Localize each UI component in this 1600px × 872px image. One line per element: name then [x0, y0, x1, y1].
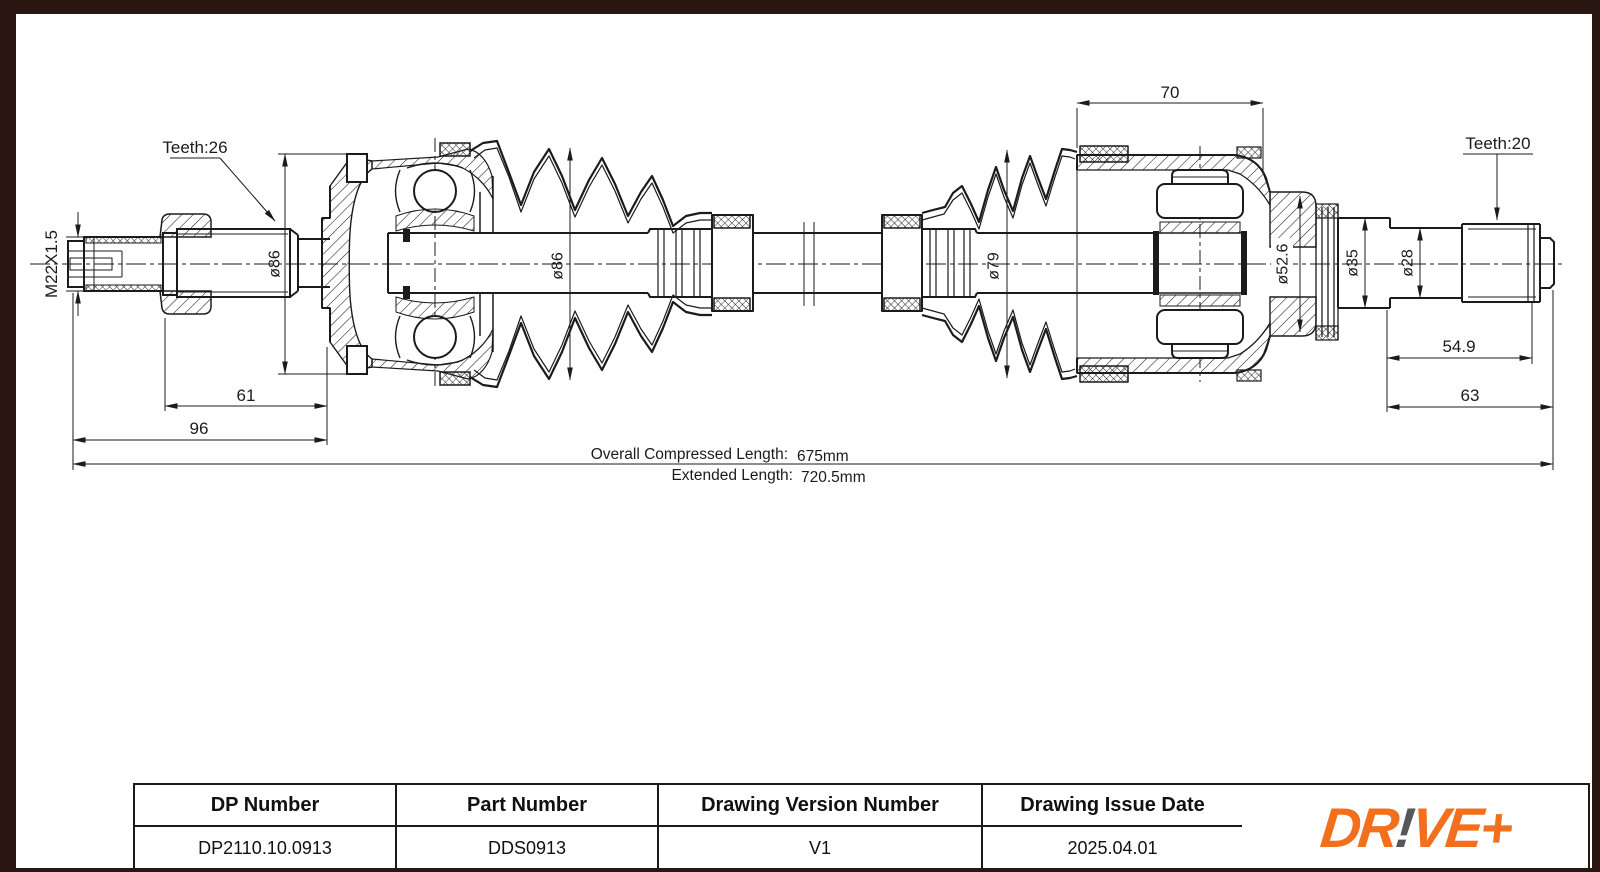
dia-boot-right-label: ø79	[986, 252, 1003, 280]
dim-54-9: 54.9	[1442, 337, 1475, 356]
logo-part-1: DR	[1317, 796, 1399, 859]
extended-length-value: 720.5mm	[801, 469, 866, 486]
issue-date-header: Drawing Issue Date	[983, 785, 1242, 827]
overall-length-label: Overall Compressed Length:	[591, 446, 788, 463]
part-number-header: Part Number	[397, 785, 659, 827]
centerlines	[30, 138, 1562, 390]
dim-61: 61	[237, 386, 256, 405]
dp-number-value: DP2110.10.0913	[135, 827, 397, 870]
page-border-left	[0, 0, 16, 872]
dimension-text: Teeth:26 Teeth:20 M22X1.5 ø86 ø86 ø79 ø5…	[42, 83, 1531, 486]
title-block: DP Number Part Number Drawing Version Nu…	[133, 783, 1590, 868]
page-border-right	[1592, 0, 1600, 872]
dia-boot-left-label: ø86	[550, 252, 567, 280]
dp-number-header: DP Number	[135, 785, 397, 827]
driveplus-logo: DR!VE+	[1318, 800, 1513, 856]
dia-shaft-end-label: ø28	[1400, 249, 1417, 277]
teeth-right-label: Teeth:20	[1465, 134, 1530, 153]
technical-drawing: Teeth:26 Teeth:20 M22X1.5 ø86 ø86 ø79 ø5…	[0, 0, 1600, 872]
teeth-left-label: Teeth:26	[162, 138, 227, 157]
drawing-version-header: Drawing Version Number	[659, 785, 983, 827]
dim-63: 63	[1461, 386, 1480, 405]
dim-96: 96	[190, 419, 209, 438]
right-output-shaft	[1338, 218, 1554, 308]
drawing-sheet: Teeth:26 Teeth:20 M22X1.5 ø86 ø86 ø79 ø5…	[0, 0, 1600, 872]
dim-70: 70	[1161, 83, 1180, 102]
part-number-value: DDS0913	[397, 827, 659, 870]
page-border-top	[0, 0, 1600, 14]
extended-length-label: Extended Length:	[671, 467, 793, 484]
issue-date-value: 2025.04.01	[983, 827, 1242, 870]
logo-part-2: VE+	[1408, 796, 1513, 859]
thread-spec-label: M22X1.5	[42, 230, 61, 298]
dia-joint-left-label: ø86	[267, 250, 284, 278]
dia-housing-right-label: ø52.6	[1275, 243, 1292, 284]
page-border-bottom	[0, 868, 1600, 872]
drawing-version-value: V1	[659, 827, 983, 870]
logo-cell: DR!VE+	[1242, 785, 1588, 870]
overall-length-value: 675mm	[797, 448, 849, 465]
dia-bearing-seat-label: ø35	[1345, 249, 1362, 277]
